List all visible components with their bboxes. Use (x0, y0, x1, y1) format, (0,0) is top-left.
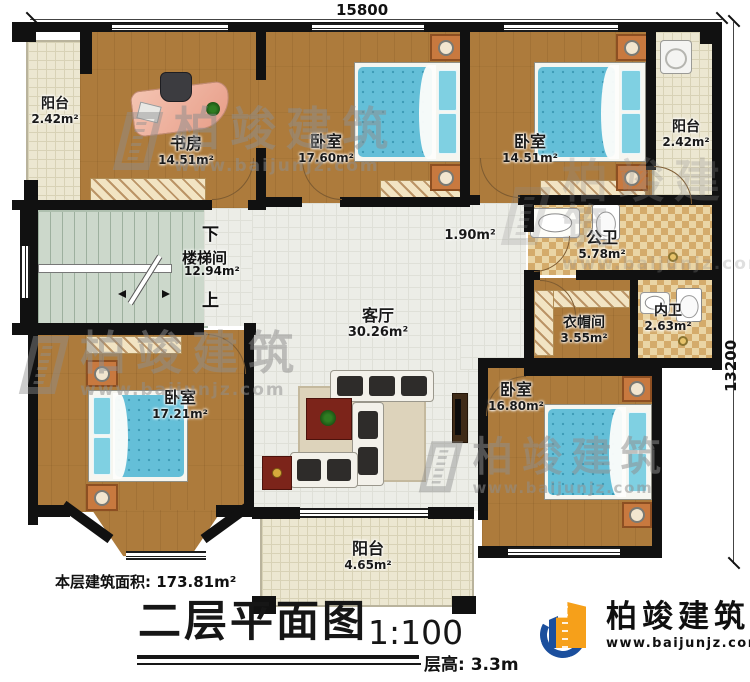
room-label-ensuite-bathroom: 内卫2.63m² (644, 304, 691, 333)
room-label-balcony-top-right: 阳台2.42m² (662, 120, 709, 149)
wall (524, 200, 534, 232)
pillow (438, 70, 457, 111)
wall (428, 507, 474, 519)
wall (478, 360, 488, 520)
bay-window (126, 551, 206, 560)
sofa-bottom (290, 452, 358, 488)
bed-bottom-right (544, 404, 652, 500)
window (112, 23, 228, 32)
floor-height-label: 层高: 3.3m (424, 650, 519, 675)
sliding-door-window (300, 508, 428, 518)
floor-drain-icon (678, 336, 688, 346)
top-dimension-label: 15800 (336, 1, 388, 19)
stair-direction-arrow (162, 290, 170, 298)
title-underline-thin (137, 663, 421, 665)
wall (652, 366, 662, 558)
blanket (609, 407, 626, 497)
hallway-area-label: 1.90m² (444, 228, 495, 243)
room-label-bedroom-bottom-right: 卧室16.80m² (488, 382, 544, 413)
side-table-lamp-icon (272, 468, 282, 478)
pillow (438, 113, 457, 154)
room-label-cloakroom: 衣帽间3.55m² (560, 316, 607, 345)
window (312, 23, 424, 32)
drawing-title: 二层平面图 (138, 601, 368, 644)
pillow (93, 397, 111, 435)
dimension-tick (728, 557, 741, 570)
window (508, 547, 620, 557)
title-underline-thick (137, 655, 419, 659)
tv-icon (455, 399, 461, 435)
company-name: 柏竣建筑 (606, 600, 750, 636)
wall (630, 278, 638, 362)
pillow (621, 113, 641, 154)
wall (244, 323, 254, 513)
wall (646, 22, 656, 170)
nightstand (616, 164, 648, 191)
nightstand (616, 34, 648, 61)
coffee-table-plant-icon (320, 410, 336, 426)
corridor-floor (460, 273, 526, 370)
wall (524, 366, 660, 376)
sofa-cushion (358, 447, 378, 475)
study-chair (160, 72, 192, 102)
window (504, 23, 618, 32)
sofa-cushion (358, 411, 378, 439)
floor-area-note: 本层建筑面积: 173.81m² (55, 571, 236, 592)
study-plant-icon (206, 102, 220, 116)
wall (12, 200, 212, 210)
sofa-cushion (401, 376, 427, 396)
wall (248, 200, 266, 210)
window (20, 246, 30, 298)
pillow (621, 70, 641, 111)
wall (460, 22, 470, 207)
company-website: www.baijunjz.com (606, 636, 750, 651)
stair-up-label: 上 (202, 286, 219, 311)
nightstand (86, 484, 118, 511)
wall (256, 148, 266, 207)
nightstand (86, 360, 118, 387)
dimension-tick (728, 15, 741, 28)
wall (700, 22, 722, 44)
sofa-cushion (337, 376, 363, 396)
wall (80, 22, 92, 74)
blanket (601, 65, 619, 159)
nightstand (430, 34, 462, 61)
wall (12, 22, 36, 42)
room-label-study: 书房14.51m² (158, 136, 214, 167)
floor-plan: 阳台2.42m² 书房14.51m² 卧室17.60m² 卧室14.51m² 阳… (0, 0, 750, 682)
wall (462, 195, 480, 205)
nightstand (430, 164, 462, 191)
room-label-bedroom-bottom-left: 卧室17.21m² (152, 390, 208, 421)
logo-building-icon (556, 602, 586, 648)
sofa-cushion (327, 459, 351, 481)
washing-machine-icon (660, 40, 692, 74)
bed-top-middle (354, 62, 462, 162)
floor-drain-icon (668, 252, 678, 262)
pillow (93, 437, 111, 475)
stair-down-label: 下 (202, 220, 219, 245)
top-dimension-line (30, 19, 722, 20)
stairwell-area-label: 12.94m² (184, 264, 240, 278)
bedroom-bottom-left-wardrobe (86, 336, 182, 354)
nightstand (622, 502, 652, 528)
room-label-public-bathroom: 公卫5.78m² (578, 230, 625, 261)
wall (340, 197, 462, 207)
stair-direction-arrow (118, 290, 126, 298)
right-dimension-line (733, 22, 734, 564)
sofa-cushion (297, 459, 321, 481)
public-bathroom-sink-icon (530, 208, 580, 238)
room-label-balcony-bottom: 阳台4.65m² (344, 541, 391, 572)
wall (266, 197, 302, 207)
drawing-scale: 1:100 (368, 613, 463, 652)
pillow (628, 412, 647, 452)
right-dimension-label: 13200 (722, 340, 740, 392)
pillow (628, 453, 647, 493)
wall (576, 270, 722, 280)
wall (256, 22, 266, 80)
wall (12, 323, 204, 335)
wall (252, 507, 300, 519)
room-label-living-room: 客厅30.26m² (348, 308, 408, 340)
room-label-balcony-top-left: 阳台2.42m² (31, 97, 78, 126)
company-logo: 柏竣建筑 www.baijunjz.com (540, 600, 750, 662)
wall (524, 278, 534, 368)
sofa-cushion (369, 376, 395, 396)
nightstand (622, 376, 652, 402)
blanket (419, 65, 436, 159)
room-label-bedroom-top-right: 卧室14.51m² (502, 134, 558, 165)
room-label-bedroom-top-middle: 卧室17.60m² (298, 134, 354, 165)
company-logo-icon (540, 600, 598, 662)
balcony-post (452, 596, 476, 614)
